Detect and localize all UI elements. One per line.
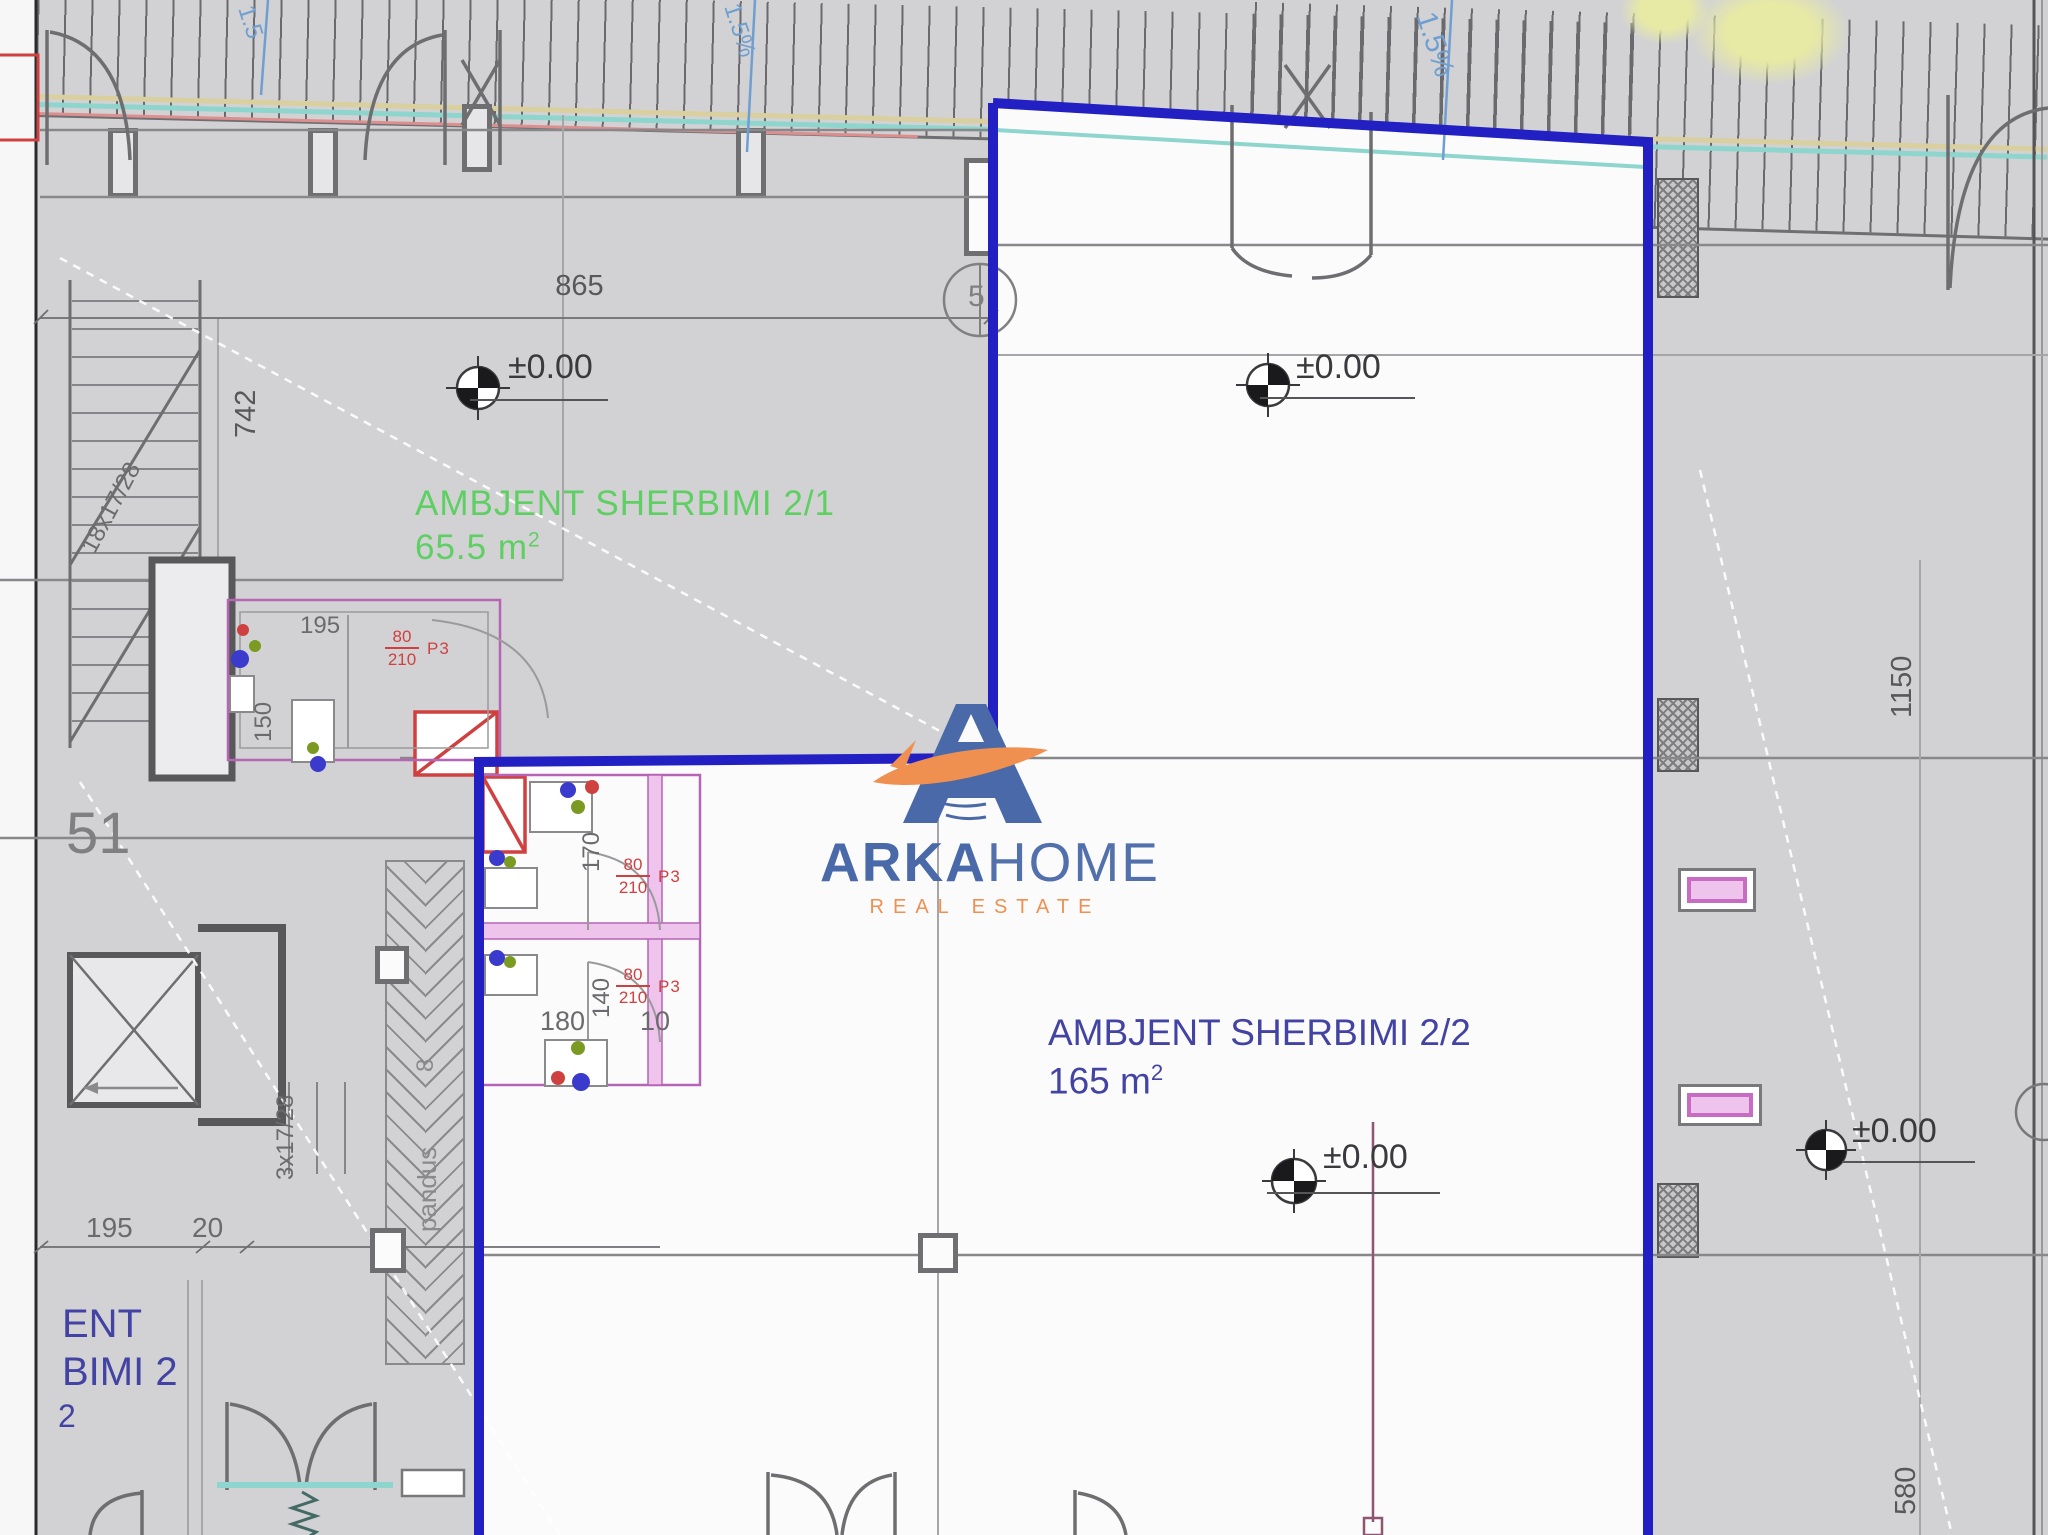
dim-150: 150 (250, 702, 278, 742)
elevation-text: ±0.00 (508, 348, 593, 387)
grid-label-51: 51 (66, 800, 131, 867)
door-sill (217, 1482, 393, 1488)
wordmark-subtitle: REAL ESTATE (820, 896, 1150, 919)
dim-195-bottom: 195 (86, 1212, 133, 1244)
dim-865: 865 (532, 270, 627, 303)
adjacent-unit-line2: BIMI 2 (62, 1350, 178, 1395)
unit-2-2-area-sup: 2 (1151, 1060, 1163, 1085)
unit-2-1-area-value: 65.5 m (415, 528, 528, 567)
column (370, 1228, 406, 1273)
door-name: P3 (427, 640, 450, 657)
door-tag-p3: 80210 P3 (385, 628, 450, 668)
door-width: 80 (624, 856, 643, 873)
vent-window (1678, 868, 1756, 912)
wordmark-home: HOME (987, 831, 1160, 893)
door-name: P3 (658, 978, 681, 995)
unit-2-1-area-sup: 2 (528, 528, 541, 551)
unit-2-2-label: AMBJENT SHERBIMI 2/2 (1048, 1012, 1471, 1054)
unit-2-1-area: 65.5 m2 (415, 528, 541, 568)
unit-2-1-label: AMBJENT SHERBIMI 2/1 (415, 484, 835, 524)
dim-140: 140 (588, 978, 616, 1018)
column (918, 1233, 958, 1273)
door-width: 80 (393, 628, 412, 645)
red-shaft-boxes (415, 712, 525, 852)
dim-742: 742 (230, 390, 263, 438)
dim-580: 580 (1890, 1467, 1923, 1515)
unit-2-2-area: 165 m2 (1048, 1060, 1163, 1102)
unit-2-2-area-value: 165 m (1048, 1060, 1151, 1101)
grid-bubble-label: 5 (968, 280, 985, 314)
floor-plan-canvas: 865 742 1150 580 AMBJENT SHERBIMI 2/1 65… (0, 0, 2048, 1535)
arkahome-logo-space (820, 690, 1150, 830)
door-tag-p3: 80210 P3 (616, 856, 681, 896)
dim-170: 170 (578, 832, 606, 872)
ramp-number: 8 (412, 1059, 440, 1072)
stair-label-lower: 3x17/28 (272, 1095, 300, 1180)
adjacent-unit-line3: 2 (58, 1398, 76, 1435)
dim-10: 10 (640, 1006, 670, 1037)
dim-195-bath: 195 (300, 612, 340, 640)
elevation-text: ±0.00 (1323, 1138, 1408, 1177)
dim-180: 180 (540, 1006, 585, 1037)
door-name: P3 (658, 868, 681, 885)
door-tag-p3: 80210 P3 (616, 966, 681, 1006)
elevation-text: ±0.00 (1852, 1112, 1937, 1151)
bathroom-upper (228, 600, 548, 772)
dim-1150: 1150 (1886, 656, 1919, 718)
arkahome-wordmark: ARKAHOME (820, 830, 1150, 894)
door-width: 80 (624, 966, 643, 983)
adjacent-unit-line1: ENT (62, 1302, 142, 1347)
door-spring-symbol (292, 1492, 316, 1535)
arkahome-watermark: ARKAHOME REAL ESTATE (820, 690, 1150, 919)
dim-20: 20 (192, 1212, 223, 1244)
column (375, 946, 409, 984)
vent-window (1678, 1084, 1762, 1126)
wordmark-arka: ARKA (820, 831, 987, 893)
elevation-text: ±0.00 (1296, 348, 1381, 387)
ramp-landing (402, 1470, 464, 1496)
door-height: 210 (619, 989, 647, 1006)
ramp-label: pandus (412, 1147, 443, 1232)
door-height: 210 (388, 651, 416, 668)
door-height: 210 (619, 879, 647, 896)
red-shaft-clipped (0, 55, 38, 140)
